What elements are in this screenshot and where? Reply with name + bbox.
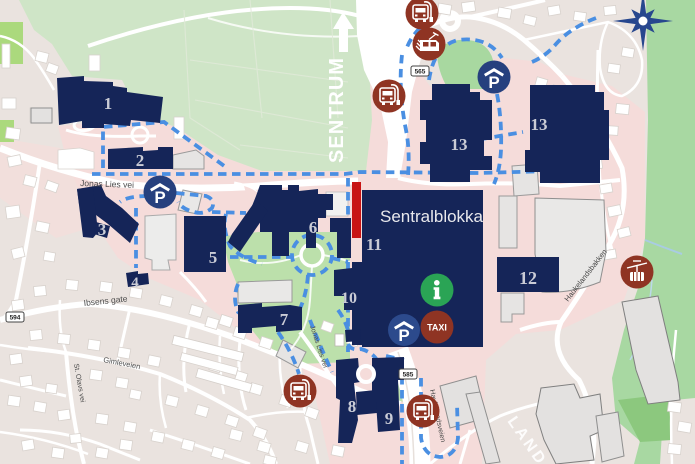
svg-text:P: P xyxy=(154,188,165,207)
svg-text:2: 2 xyxy=(136,151,145,170)
svg-text:1: 1 xyxy=(104,94,113,113)
svg-text:SENTRUM: SENTRUM xyxy=(326,57,348,163)
svg-text:TAXI: TAXI xyxy=(427,323,447,333)
svg-text:P: P xyxy=(398,326,409,345)
svg-text:13: 13 xyxy=(531,115,548,134)
svg-text:585: 585 xyxy=(403,372,414,379)
svg-text:P: P xyxy=(488,73,499,92)
svg-text:8: 8 xyxy=(348,397,357,416)
svg-text:12: 12 xyxy=(519,268,537,288)
svg-text:Jonas Lies vei: Jonas Lies vei xyxy=(80,178,134,190)
svg-text:3: 3 xyxy=(98,220,107,239)
svg-text:565: 565 xyxy=(415,69,426,76)
svg-text:9: 9 xyxy=(385,409,394,428)
svg-text:6: 6 xyxy=(309,218,318,237)
svg-text:594: 594 xyxy=(10,315,21,322)
svg-text:4: 4 xyxy=(131,275,139,291)
svg-text:10: 10 xyxy=(341,290,357,307)
svg-text:11: 11 xyxy=(366,235,382,254)
svg-text:7: 7 xyxy=(280,310,289,329)
svg-text:5: 5 xyxy=(209,248,218,267)
svg-text:13: 13 xyxy=(451,135,468,154)
svg-text:Sentralblokka: Sentralblokka xyxy=(380,207,484,226)
